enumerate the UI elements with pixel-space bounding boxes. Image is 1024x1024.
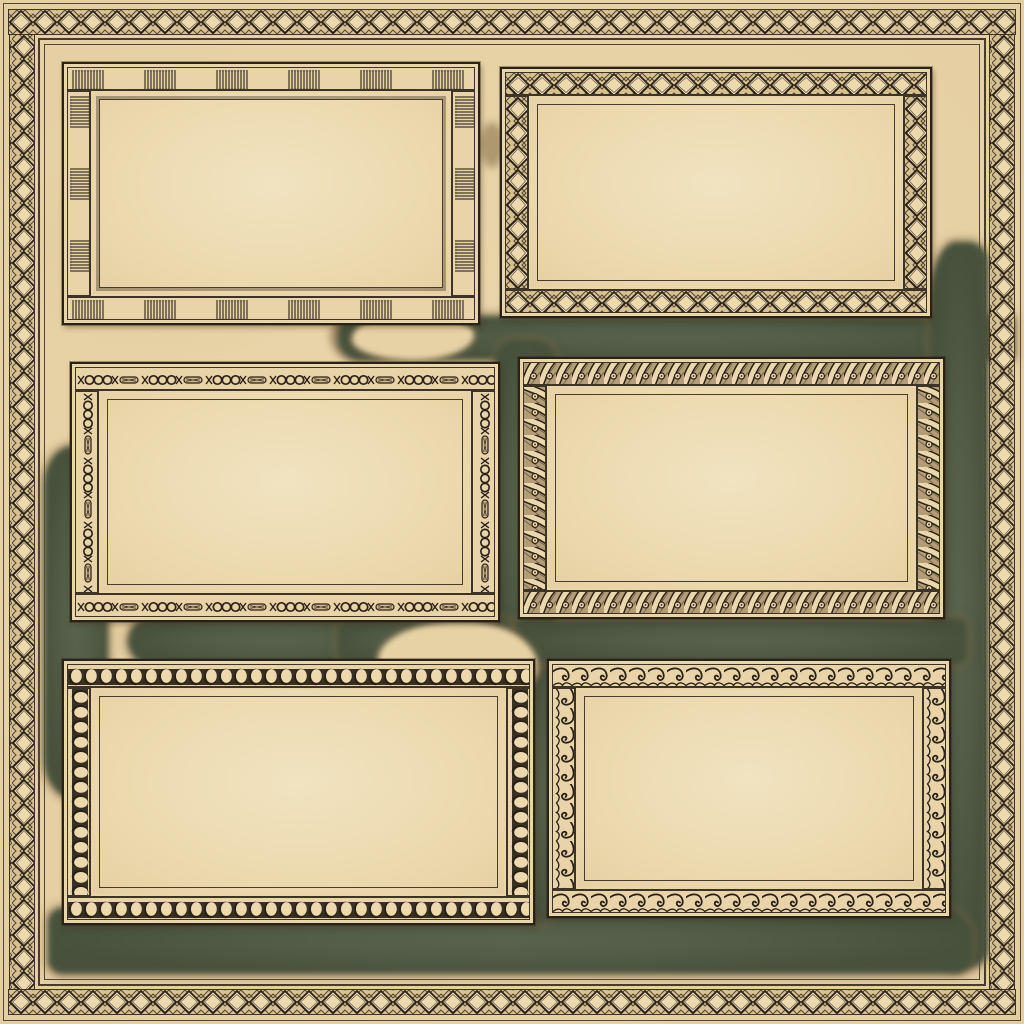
- wave-curl-ornament: [553, 891, 946, 913]
- ornament-band-bottom: [75, 593, 495, 617]
- frame-content-area: [531, 98, 901, 287]
- ornament-band-left: [523, 386, 547, 590]
- ornament-band-top: [505, 72, 927, 96]
- content-rule: [537, 104, 895, 281]
- frame-content-area: [578, 690, 920, 887]
- ornament-band-right: [506, 688, 530, 896]
- ornament-band-left: [552, 688, 576, 889]
- diamond-lattice-ornament: [506, 73, 927, 96]
- tally-hatch-ornament: [68, 92, 91, 296]
- tally-hatch-ornament: [453, 92, 475, 296]
- spiral-rope-ornament: [524, 592, 940, 614]
- diamond-lattice-ornament: [9, 10, 1016, 35]
- frame-top-left: [62, 62, 480, 325]
- diamond-lattice-ornament: [990, 35, 1015, 990]
- frame-middle-left: [70, 362, 500, 622]
- bead-and-reel-ornament: [76, 595, 495, 617]
- frame-top-right: [500, 67, 932, 318]
- ornament-band-right: [916, 386, 940, 590]
- ornament-band-bottom: [552, 889, 946, 913]
- ornament-band-bottom: [67, 896, 530, 920]
- spiral-rope-ornament: [524, 363, 940, 386]
- content-rule: [584, 696, 914, 881]
- page-border-band-top: [8, 9, 1016, 35]
- wave-curl-ornament: [553, 689, 576, 889]
- bead-and-reel-ornament: [76, 392, 99, 593]
- diamond-lattice-ornament: [10, 35, 35, 990]
- frame-bottom-right: [547, 659, 951, 918]
- ornament-band-left: [505, 96, 529, 289]
- wave-curl-ornament: [553, 665, 946, 688]
- bead-and-reel-ornament: [76, 368, 495, 391]
- ornament-band-left: [67, 91, 91, 296]
- content-rule: [555, 394, 908, 582]
- ornament-band-bottom: [67, 296, 475, 320]
- ornament-band-bottom: [523, 590, 940, 614]
- ornament-band-bottom: [505, 289, 927, 313]
- ornament-band-top: [552, 664, 946, 688]
- page-border-band-right: [989, 34, 1015, 990]
- tally-hatch-ornament: [68, 68, 475, 91]
- diamond-lattice-ornament: [9, 990, 1016, 1015]
- frame-content-area: [93, 93, 449, 294]
- map-stain-row-gap-right: [515, 618, 967, 664]
- diamond-lattice-ornament: [506, 97, 529, 289]
- egg-bead-ornament: [68, 689, 91, 896]
- content-rule: [99, 696, 498, 888]
- bead-and-reel-ornament: [473, 392, 495, 593]
- tally-hatch-ornament: [68, 298, 475, 320]
- ornament-band-top: [67, 67, 475, 91]
- ornament-band-top: [67, 664, 530, 688]
- page-border-band-left: [9, 34, 35, 990]
- ornament-band-right: [451, 91, 475, 296]
- ornament-band-left: [67, 688, 91, 896]
- content-rule: [99, 99, 443, 288]
- parchment-sheet: [0, 0, 1024, 1024]
- ornament-band-right: [903, 96, 927, 289]
- ornament-band-left: [75, 391, 99, 593]
- page-border-band-bottom: [8, 989, 1016, 1015]
- frame-content-area: [101, 393, 469, 591]
- content-rule: [107, 399, 463, 585]
- frame-content-area: [93, 690, 504, 894]
- wave-curl-ornament: [924, 689, 946, 889]
- ornament-band-top: [523, 362, 940, 386]
- frame-content-area: [549, 388, 914, 588]
- ornament-band-top: [75, 367, 495, 391]
- spiral-rope-ornament: [918, 387, 940, 590]
- ornament-band-right: [471, 391, 495, 593]
- ornament-band-right: [922, 688, 946, 889]
- diamond-lattice-ornament: [506, 291, 927, 313]
- frame-middle-right: [518, 357, 945, 619]
- egg-bead-ornament: [68, 898, 530, 920]
- spiral-rope-ornament: [524, 387, 547, 590]
- diamond-lattice-ornament: [905, 97, 927, 289]
- egg-bead-ornament: [508, 689, 530, 896]
- egg-bead-ornament: [68, 665, 530, 688]
- frame-bottom-left: [62, 659, 535, 925]
